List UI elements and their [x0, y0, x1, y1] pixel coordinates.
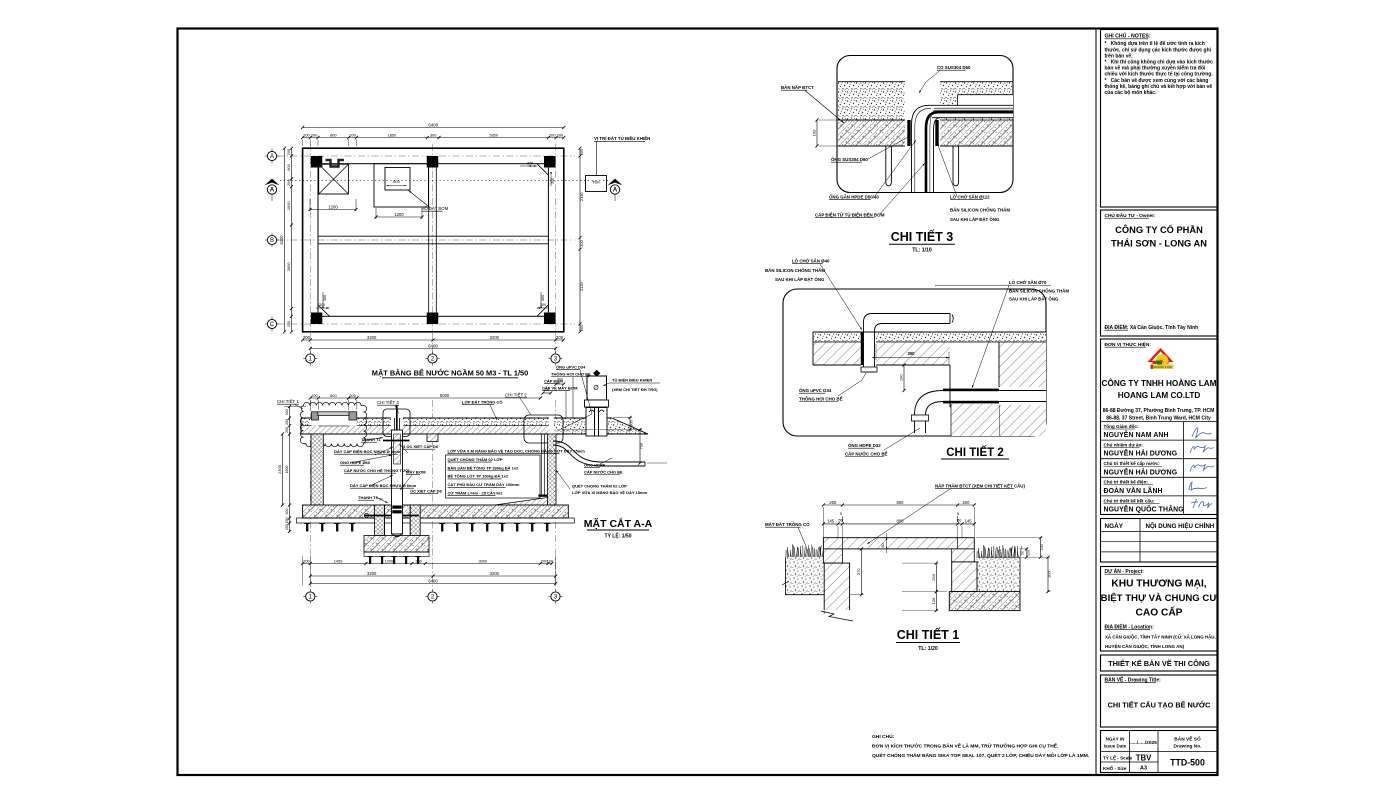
svg-text:của các bộ môn khác.: của các bộ môn khác. — [1105, 90, 1158, 96]
svg-text:800: 800 — [897, 500, 905, 505]
svg-text:XÃ CẦN GIUỘC, TỈNH TÂY NINH (C: XÃ CẦN GIUỘC, TỈNH TÂY NINH (CŨ: XÃ LONG… — [1105, 635, 1216, 640]
svg-text:C: C — [270, 322, 275, 328]
svg-text:SAU KHI LẮP ĐẶT ỐNG: SAU KHI LẮP ĐẶT ỐNG — [950, 217, 1000, 222]
svg-text:TTD-500: TTD-500 — [1170, 758, 1205, 768]
svg-text:200: 200 — [303, 558, 310, 563]
svg-text:600: 600 — [393, 179, 400, 184]
svg-text:Issue Date: Issue Date — [1104, 744, 1127, 749]
svg-text:145: 145 — [827, 519, 835, 524]
svg-text:CỪ TRÀM L=4m - 25 CÂY/m2: CỪ TRÀM L=4m - 25 CÂY/m2 — [448, 491, 504, 496]
svg-text:CÔNG TY TNHH HOÀNG LAM: CÔNG TY TNHH HOÀNG LAM — [1102, 377, 1217, 388]
svg-text:200: 200 — [349, 132, 356, 137]
svg-text:145: 145 — [965, 519, 973, 524]
svg-text:HOANG LAM: HOANG LAM — [1152, 365, 1171, 369]
svg-text:SAU KHI LẮP ĐẶT ỐNG: SAU KHI LẮP ĐẶT ỐNG — [1009, 297, 1059, 302]
svg-text:(XEM CHI TIẾT ĐH TRG): (XEM CHI TIẾT ĐH TRG) — [612, 387, 658, 392]
svg-text:thống kê, bảng ghi chú và kết: thống kê, bảng ghi chú và kết hợp với bả… — [1105, 83, 1213, 90]
svg-text:Chủ trì thiết kế kết cấu:: Chủ trì thiết kế kết cấu: — [1104, 497, 1155, 503]
svg-text:trên bản vẽ.: trên bản vẽ. — [1105, 53, 1134, 59]
svg-text:VỊ TRÍ ĐẶT TỦ ĐIỀU KHIỂN: VỊ TRÍ ĐẶT TỦ ĐIỀU KHIỂN — [594, 136, 650, 141]
svg-text:200: 200 — [311, 132, 318, 137]
svg-text:NGUYỄN NAM ANH: NGUYỄN NAM ANH — [1104, 430, 1169, 439]
svg-text:Chủ trì thiết kế điện:: Chủ trì thiết kế điện: — [1104, 479, 1149, 485]
svg-text:ĐOÀN VĂN LÃNH: ĐOÀN VĂN LÃNH — [1104, 486, 1163, 495]
svg-text:HOANG LAM CO.LTD: HOANG LAM CO.LTD — [1118, 391, 1201, 400]
svg-text:300: 300 — [323, 295, 327, 301]
svg-text:2130: 2130 — [579, 281, 584, 290]
svg-text:86-88 Đường 37, Phường Bình Tr: 86-88 Đường 37, Phường Bình Trưng, TP. H… — [1103, 408, 1215, 414]
svg-text:200: 200 — [286, 320, 291, 327]
svg-text:250: 250 — [931, 573, 936, 580]
svg-text:MẶT CẮT A-A: MẶT CẮT A-A — [584, 517, 653, 530]
svg-text:CHI TIẾT CẤU TẠO BỂ NƯỚC: CHI TIẾT CẤU TẠO BỂ NƯỚC — [1108, 700, 1211, 710]
svg-text:HL: HL — [1160, 359, 1165, 363]
svg-text:200: 200 — [303, 132, 310, 137]
svg-text:350: 350 — [415, 558, 422, 563]
svg-text:200: 200 — [556, 335, 564, 340]
svg-text:CẤP NƯỚC CHO HỆ THỐNG TƯỚI: CẤP NƯỚC CHO HỆ THỐNG TƯỚI — [344, 468, 410, 473]
svg-text:Chủ trì thiết kế cấp nước:: Chủ trì thiết kế cấp nước: — [1104, 460, 1161, 466]
svg-text:80: 80 — [881, 543, 885, 547]
svg-text:ỐNG HDPE: ỐNG HDPE — [584, 463, 606, 468]
svg-text:CHI TIẾT 2: CHI TIẾT 2 — [946, 446, 1004, 459]
svg-text:1200: 1200 — [328, 204, 338, 209]
svg-text:Tổng Giám đốc:: Tổng Giám đốc: — [1104, 423, 1139, 429]
svg-text:HUYỆN CẦN GIUỘC, TỈNH LONG AN): HUYỆN CẦN GIUỘC, TỈNH LONG AN) — [1105, 642, 1185, 649]
svg-text:TỶ LỆ - Scale: TỶ LỆ - Scale — [1103, 754, 1133, 761]
svg-text:6400: 6400 — [428, 122, 438, 127]
svg-text:MẶT ĐẤT TRỒNG CỎ: MẶT ĐẤT TRỒNG CỎ — [765, 522, 810, 527]
svg-text:LỚP VỮA XI MĂNG BẢO VỆ DÀY 15m: LỚP VỮA XI MĂNG BẢO VỆ DÀY 15mm — [572, 490, 648, 495]
svg-text:DÂY CÁP ĐIỆN BỌC NHỰA Ø 8mm: DÂY CÁP ĐIỆN BỌC NHỰA Ø 8mm — [334, 449, 401, 454]
svg-text:300: 300 — [541, 295, 545, 301]
svg-text:CHI TIẾT 2: CHI TIẾT 2 — [505, 393, 527, 398]
svg-text:50: 50 — [839, 519, 843, 523]
svg-text:KHỔ - Size: KHỔ - Size — [1103, 765, 1127, 771]
svg-text:800: 800 — [330, 132, 337, 137]
svg-text:CHI TIẾT 1: CHI TIẾT 1 — [897, 627, 960, 642]
svg-text:LỖ CHỜ SẴN Ø112: LỖ CHỜ SẴN Ø112 — [950, 195, 990, 200]
svg-text:CẤP VỀ MÁY BƠM: CẤP VỀ MÁY BƠM — [542, 386, 578, 391]
svg-text:TỶ LỆ: 1/50: TỶ LỆ: 1/50 — [605, 532, 632, 540]
svg-text:GHI CHÚ:: GHI CHÚ: — [872, 733, 895, 740]
svg-text:100: 100 — [547, 558, 554, 563]
svg-text:LỚP ĐẤT TRỒNG CỎ: LỚP ĐẤT TRỒNG CỎ — [462, 400, 502, 405]
svg-text:...../...../2025: ...../...../2025 — [1130, 740, 1157, 746]
svg-text:MÁY BƠM: MÁY BƠM — [406, 470, 426, 475]
svg-text:300: 300 — [1048, 571, 1052, 577]
svg-text:200: 200 — [349, 393, 356, 398]
svg-text:600: 600 — [286, 163, 291, 170]
svg-text:A: A — [270, 154, 274, 160]
svg-text:NGÀY IN: NGÀY IN — [1106, 736, 1125, 742]
svg-text:BẢN VẼ SỐ: BẢN VẼ SỐ — [1174, 736, 1201, 743]
svg-text:4 ỐC XIẾT CÁP D6: 4 ỐC XIẾT CÁP D6 — [403, 444, 439, 449]
svg-text:THIẾT KẾ BẢN VẼ THI CÔNG: THIẾT KẾ BẢN VẼ THI CÔNG — [1108, 658, 1210, 668]
svg-text:1450: 1450 — [334, 558, 343, 563]
svg-text:50: 50 — [1021, 551, 1025, 555]
svg-text:200: 200 — [557, 378, 563, 382]
svg-text:QUÉT CHỐNG THẤM 02 LỚP: QUÉT CHỐNG THẤM 02 LỚP — [448, 457, 503, 462]
svg-text:HỐ ĐẶT BƠM: HỐ ĐẶT BƠM — [422, 206, 449, 211]
svg-text:100: 100 — [899, 374, 904, 381]
svg-text:MẶT BẰNG BỂ NƯỚC NGẦM 50 M3 -: MẶT BẰNG BỂ NƯỚC NGẦM 50 M3 - TL 1/50 — [372, 368, 528, 378]
svg-text:SAU KHI LẮP ĐẶT ỐNG: SAU KHI LẮP ĐẶT ỐNG — [775, 277, 825, 282]
svg-text:200: 200 — [829, 500, 837, 505]
svg-text:ỐC XIẾT CÁP D8: ỐC XIẾT CÁP D8 — [410, 489, 442, 494]
svg-text:200: 200 — [579, 148, 584, 155]
svg-text:790: 790 — [639, 442, 644, 449]
svg-text:ỐNG GÂN HPDE D50/40: ỐNG GÂN HPDE D50/40 — [829, 195, 879, 200]
svg-text:86-88, 37 Street, Binh Trung W: 86-88, 37 Street, Binh Trung Ward, HCM C… — [1106, 416, 1211, 422]
svg-text:chiếu với kích thước thực tế t: chiếu với kích thước thực tế tại công tr… — [1105, 71, 1214, 78]
svg-text:50: 50 — [958, 519, 962, 523]
svg-text:100: 100 — [812, 129, 817, 136]
svg-text:BÊ TÔNG LÓT TP 100kg ĐÁ 1x2: BÊ TÔNG LÓT TP 100kg ĐÁ 1x2 — [448, 474, 509, 479]
svg-text:150: 150 — [285, 518, 289, 524]
svg-text:BẢN NẮP BTCT: BẢN NẮP BTCT — [781, 85, 814, 90]
svg-text:KHU THƯƠNG MẠI,: KHU THƯƠNG MẠI, — [1111, 579, 1206, 590]
svg-text:NGUYỄN HẢI DƯƠNG: NGUYỄN HẢI DƯƠNG — [1104, 449, 1178, 458]
svg-text:1200: 1200 — [394, 212, 404, 217]
svg-text:300: 300 — [579, 239, 584, 246]
svg-text:ỐNG SUS304 D60: ỐNG SUS304 D60 — [831, 157, 868, 162]
svg-text:CẤP NƯỚC CHO BỂ: CẤP NƯỚC CHO BỂ — [584, 470, 623, 475]
svg-text:thước, chỉ sử dụng các kích th: thước, chỉ sử dụng các kích thước được g… — [1105, 47, 1212, 53]
svg-text:50: 50 — [379, 498, 383, 502]
svg-text:3200: 3200 — [367, 335, 377, 340]
svg-text:2800: 2800 — [286, 262, 291, 271]
svg-text:300: 300 — [551, 178, 555, 184]
svg-text:* Các bản vẽ được xem cùng v: * Các bản vẽ được xem cùng với các bảng — [1105, 78, 1209, 84]
svg-text:300: 300 — [629, 419, 634, 426]
svg-text:5000: 5000 — [440, 393, 450, 398]
svg-text:CAO CẤP: CAO CẤP — [1136, 606, 1183, 619]
svg-text:THÁI SƠN - LONG AN: THÁI SƠN - LONG AN — [1111, 239, 1207, 249]
svg-text:3000: 3000 — [478, 558, 487, 563]
svg-text:800: 800 — [897, 519, 905, 524]
svg-text:300: 300 — [285, 509, 289, 515]
svg-text:TDK: TDK — [592, 179, 600, 184]
svg-text:CHI TIẾT 3: CHI TIẾT 3 — [377, 400, 399, 405]
svg-text:BẢN SÀN BÊ TÔNG TP 330kg ĐÁ 1x: BẢN SÀN BÊ TÔNG TP 330kg ĐÁ 1x2 — [448, 465, 520, 470]
svg-text:1850: 1850 — [388, 132, 397, 137]
svg-text:THANH T3: THANH T3 — [358, 495, 379, 500]
svg-text:CẤP NƯỚC CHO BỂ: CẤP NƯỚC CHO BỂ — [845, 452, 888, 457]
svg-text:CHI TIẾT 3: CHI TIẾT 3 — [891, 229, 954, 244]
svg-text:* Không dựa trên tỉ lệ để ướ: * Không dựa trên tỉ lệ để ước tính ra kí… — [1105, 40, 1205, 47]
svg-text:NGUYỄN HẢI DƯƠNG: NGUYỄN HẢI DƯƠNG — [1104, 467, 1178, 476]
svg-text:6400: 6400 — [428, 343, 438, 348]
svg-text:200: 200 — [579, 324, 584, 331]
svg-text:TỦ ĐIỆN ĐIỀU KHIỂN: TỦ ĐIỆN ĐIỀU KHIỂN — [612, 378, 652, 383]
svg-text:200: 200 — [285, 524, 289, 530]
svg-text:3200: 3200 — [490, 335, 500, 340]
svg-text:3200: 3200 — [490, 571, 500, 576]
svg-text:CẤP ĐIỆN TỪ TỦ ĐIỆN ĐẾN BƠM: CẤP ĐIỆN TỪ TỦ ĐIỆN ĐẾN BƠM — [815, 213, 885, 218]
svg-text:ỐNG uPVC D34: ỐNG uPVC D34 — [556, 365, 586, 370]
svg-text:200: 200 — [285, 419, 289, 425]
svg-text:300: 300 — [527, 162, 533, 166]
svg-text:200: 200 — [557, 132, 564, 137]
svg-text:LỖ CHỜ SẴN Ø70: LỖ CHỜ SẴN Ø70 — [1009, 280, 1047, 285]
svg-text:B: B — [270, 238, 274, 244]
svg-text:TBV: TBV — [1136, 754, 1152, 763]
svg-text:300: 300 — [285, 409, 289, 415]
svg-text:CÁT PHỦ ĐẦU CỪ TRÀM DÀY 100mm: CÁT PHỦ ĐẦU CỪ TRÀM DÀY 100mm — [448, 482, 520, 487]
svg-text:THANH T1: THANH T1 — [361, 437, 382, 442]
svg-text:150: 150 — [1040, 544, 1044, 550]
svg-text:A: A — [613, 188, 618, 194]
svg-text:200: 200 — [549, 132, 556, 137]
svg-text:DÂY CÁP ĐIỆN BỌC NHỰA Ø 6mm: DÂY CÁP ĐIỆN BỌC NHỰA Ø 6mm — [350, 483, 417, 488]
svg-text:LỖ CHỜ SẴN Ø40: LỖ CHỜ SẴN Ø40 — [792, 259, 830, 264]
svg-text:120: 120 — [931, 597, 936, 604]
svg-text:3200: 3200 — [367, 571, 377, 576]
svg-text:CO SUS304 D60: CO SUS304 D60 — [937, 65, 971, 70]
svg-text:NẮP THĂM BTCT (XEM CHI TIẾT KẾ: NẮP THĂM BTCT (XEM CHI TIẾT KẾT CẤU) — [935, 484, 1025, 489]
svg-text:200: 200 — [286, 179, 291, 186]
svg-text:4400: 4400 — [279, 235, 284, 245]
svg-text:A: A — [270, 188, 275, 194]
svg-text:ỐNG uPVC D34: ỐNG uPVC D34 — [799, 388, 832, 393]
svg-text:bản vẽ mà phải thường xuyên ki: bản vẽ mà phải thường xuyên kiểm tra đối — [1105, 65, 1206, 72]
svg-text:300: 300 — [430, 132, 437, 137]
svg-text:1000: 1000 — [286, 201, 291, 210]
svg-text:100: 100 — [1027, 550, 1031, 556]
svg-text:TL: 1/20: TL: 1/20 — [918, 646, 938, 652]
svg-text:2300: 2300 — [277, 464, 282, 474]
svg-text:2130: 2130 — [579, 192, 584, 201]
svg-text:200: 200 — [311, 393, 318, 398]
svg-text:200: 200 — [303, 335, 311, 340]
svg-text:NỘI DUNG HIỆU CHỈNH: NỘI DUNG HIỆU CHỈNH — [1146, 522, 1215, 530]
svg-text:2850: 2850 — [489, 132, 498, 137]
svg-text:ỐNG HDPE D32: ỐNG HDPE D32 — [848, 443, 881, 448]
svg-text:BẮN SILICON CHỐNG THẤM: BẮN SILICON CHỐNG THẤM — [1009, 289, 1069, 294]
svg-text:200: 200 — [286, 148, 291, 155]
svg-text:1200: 1200 — [385, 558, 394, 563]
svg-text:Drawing No.: Drawing No. — [1174, 744, 1202, 750]
svg-text:370: 370 — [856, 568, 861, 575]
svg-text:THÔNG HƠI CHO BỂ: THÔNG HƠI CHO BỂ — [799, 397, 843, 402]
svg-text:* Khi thi công không chỉ dựa: * Khi thi công không chỉ dựa vào kích th… — [1105, 60, 1214, 66]
svg-text:CÔNG TY CỔ PHẦN: CÔNG TY CỔ PHẦN — [1115, 224, 1203, 235]
svg-text:200: 200 — [962, 500, 970, 505]
svg-text:300: 300 — [908, 351, 916, 356]
svg-text:QUÉT CHỐNG THẤM 02 LỚP: QUÉT CHỐNG THẤM 02 LỚP — [572, 484, 627, 489]
svg-text:BẮN SILICON CHỐNG THẤM: BẮN SILICON CHỐNG THẤM — [765, 268, 825, 273]
svg-text:A3: A3 — [1140, 766, 1147, 772]
svg-text:BẮN SILICON CHỐNG THẤM: BẮN SILICON CHỐNG THẤM — [950, 208, 1010, 213]
svg-text:6400: 6400 — [428, 578, 438, 583]
svg-text:BIỆT THỰ VÀ CHUNG CƯ: BIỆT THỰ VÀ CHUNG CƯ — [1101, 592, 1218, 604]
svg-text:LỚP VỮA X.M NÂNG BẢO VỆ TẠO DỐ: LỚP VỮA X.M NÂNG BẢO VỆ TẠO DỐC, CHỐNG N… — [448, 449, 586, 454]
svg-text:CHI TIẾT 1: CHI TIẾT 1 — [277, 399, 299, 404]
svg-text:TL: 1/10: TL: 1/10 — [912, 248, 932, 254]
svg-text:1800: 1800 — [285, 466, 289, 474]
svg-text:Chủ nhiệm dự án:: Chủ nhiệm dự án: — [1104, 443, 1144, 448]
svg-text:THÔNG HƠI CHO BỂ: THÔNG HƠI CHO BỂ — [551, 372, 591, 377]
svg-text:ỐNG HDPE Ø60: ỐNG HDPE Ø60 — [340, 460, 371, 465]
svg-text:800: 800 — [330, 393, 337, 398]
svg-text:300: 300 — [319, 303, 325, 307]
svg-text:200: 200 — [285, 427, 289, 433]
svg-text:NGÀY: NGÀY — [1105, 521, 1124, 530]
